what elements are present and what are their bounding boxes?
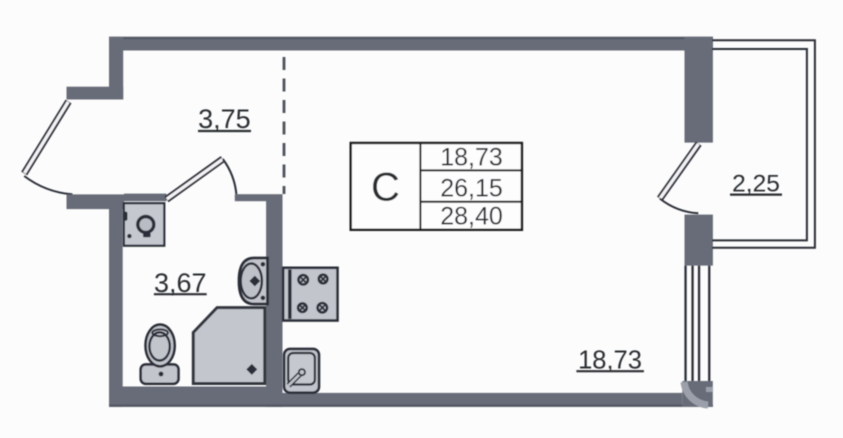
svg-text:26,15: 26,15	[440, 175, 503, 203]
svg-text:С: С	[371, 166, 400, 210]
svg-text:28,40: 28,40	[440, 202, 503, 230]
svg-text:18,73: 18,73	[440, 144, 503, 172]
svg-text:3,75: 3,75	[198, 104, 251, 134]
